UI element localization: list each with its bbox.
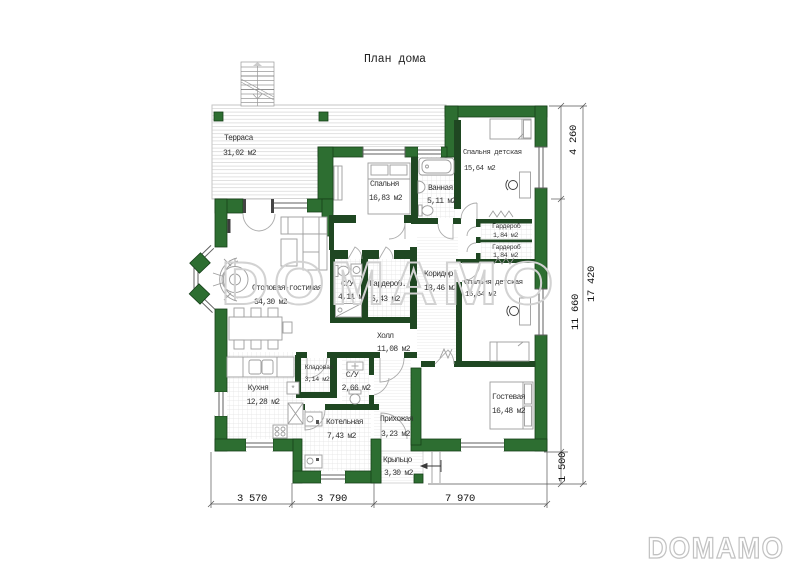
svg-text:Гостевая: Гостевая (492, 393, 525, 402)
svg-text:11,08 м2: 11,08 м2 (377, 345, 411, 354)
svg-text:Гардероб: Гардероб (492, 222, 521, 230)
svg-text:Спальня детская: Спальня детская (463, 149, 522, 157)
svg-text:Кладовая: Кладовая (305, 364, 334, 371)
svg-text:DOMAMO: DOMAMO (647, 532, 784, 565)
svg-text:7 970: 7 970 (445, 493, 475, 505)
svg-text:11 660: 11 660 (570, 294, 582, 330)
svg-text:16,48 м2: 16,48 м2 (492, 407, 526, 416)
svg-text:5,11 м2: 5,11 м2 (427, 197, 457, 206)
svg-text:3 570: 3 570 (237, 493, 267, 505)
svg-text:2,66 м2: 2,66 м2 (342, 384, 372, 393)
svg-text:15,64 м2: 15,64 м2 (464, 165, 495, 173)
svg-text:Терраса: Терраса (224, 134, 254, 143)
svg-text:17 420: 17 420 (586, 266, 598, 302)
svg-text:Спальня: Спальня (370, 180, 399, 189)
svg-text:3,14 м2: 3,14 м2 (305, 376, 330, 383)
svg-text:Котельная: Котельная (326, 418, 363, 427)
svg-text:План дома: План дома (364, 53, 426, 66)
svg-text:Холл: Холл (377, 332, 394, 341)
svg-text:31,02 м2: 31,02 м2 (223, 149, 257, 158)
svg-text:С/У: С/У (346, 371, 359, 380)
svg-text:3,30 м2: 3,30 м2 (384, 469, 414, 478)
svg-text:Крыльцо: Крыльцо (383, 456, 413, 465)
svg-text:7,43 м2: 7,43 м2 (327, 432, 357, 441)
svg-text:Ванная: Ванная (428, 184, 453, 193)
svg-text:Прихожая: Прихожая (380, 415, 413, 424)
svg-text:4 260: 4 260 (568, 125, 580, 155)
svg-text:1,84 м2: 1,84 м2 (493, 232, 518, 239)
svg-text:3,23 м2: 3,23 м2 (381, 430, 411, 439)
svg-text:DOMAMO: DOMAMO (221, 250, 559, 317)
svg-text:Кухня: Кухня (248, 384, 269, 393)
svg-text:1 500: 1 500 (557, 452, 569, 482)
svg-text:12,28 м2: 12,28 м2 (247, 398, 281, 407)
svg-text:16,83 м2: 16,83 м2 (369, 194, 403, 203)
svg-text:*: * (291, 385, 296, 394)
svg-text:3 790: 3 790 (317, 493, 347, 505)
